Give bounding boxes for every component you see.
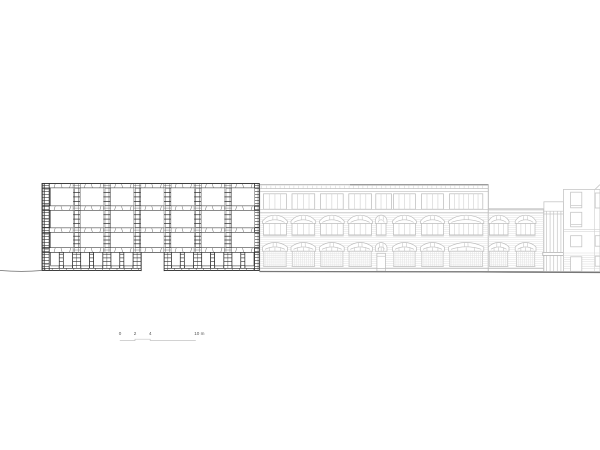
svg-text:10 m: 10 m xyxy=(194,331,204,336)
svg-text:0: 0 xyxy=(119,331,122,336)
svg-text:2: 2 xyxy=(134,331,137,336)
svg-text:4: 4 xyxy=(149,331,152,336)
